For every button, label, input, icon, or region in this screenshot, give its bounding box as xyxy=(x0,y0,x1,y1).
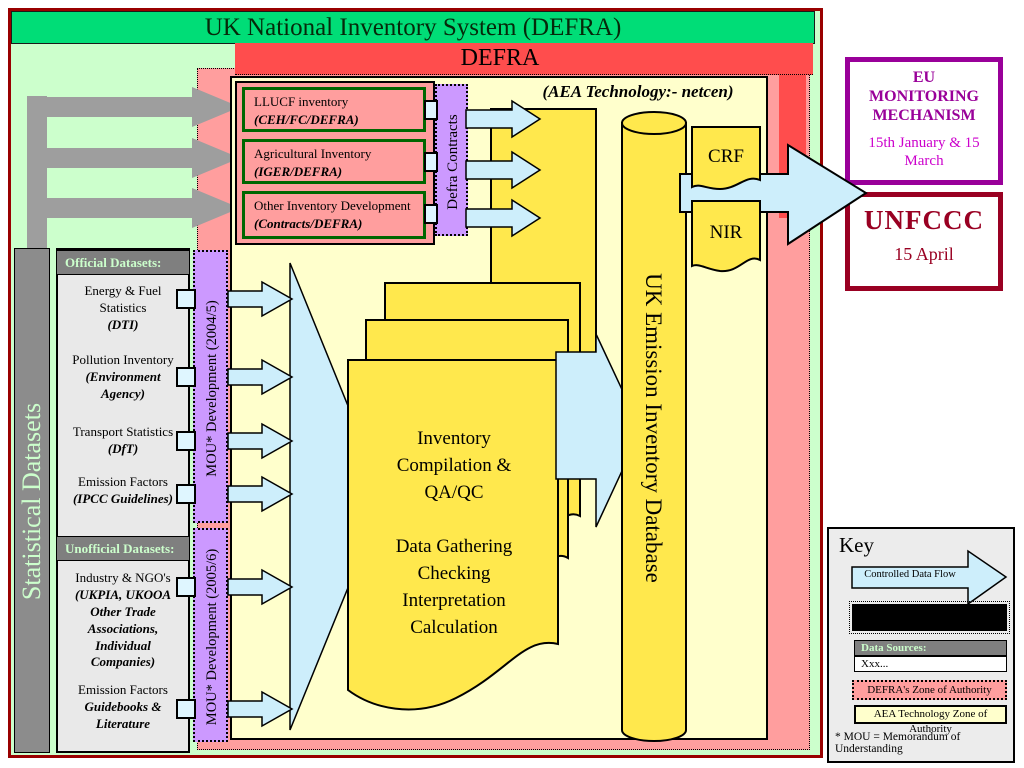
key-data-sources-example: Xxx... xyxy=(854,656,1007,672)
connector-tab xyxy=(176,367,196,387)
contract-box-name: Agricultural Inventory xyxy=(254,146,371,161)
aea-zone-label: (AEA Technology:- netcen) xyxy=(510,82,766,102)
key-data-sources-header: Data Sources: xyxy=(854,640,1007,656)
key-mou-note: * MOU = Memorandum of Understanding xyxy=(835,731,1013,755)
key-defra-zone-swatch: DEFRA's Zone of Authority xyxy=(852,680,1007,700)
dataset-name: Industry & NGO's xyxy=(75,570,171,585)
statistical-datasets-bar: Statistical Datasets xyxy=(14,248,50,753)
eu-monitoring-dates: 15th January & 15 March xyxy=(850,134,998,170)
connector-tab xyxy=(176,699,196,719)
mou-bar-2005-label: MOU* Development (2005/6) xyxy=(195,530,230,744)
key-controlled-flow-label: Controlled Data Flow xyxy=(852,569,968,580)
dataset-source: (DfT) xyxy=(56,441,190,458)
connector-tab xyxy=(176,431,196,451)
connector-tab xyxy=(424,100,438,120)
process-description: Inventory Compilation & QA/QC Data Gathe… xyxy=(358,426,550,642)
page-title: UK National Inventory System (DEFRA) xyxy=(11,11,815,44)
mou-bar-2004: MOU* Development (2004/5) xyxy=(193,250,228,523)
defra-contracts-label: Defra Contracts xyxy=(437,86,470,238)
connector-tab xyxy=(424,204,438,224)
dataset-source: (UKPIA, UKOOA Other Trade Associations, … xyxy=(56,587,190,671)
connector-tab xyxy=(176,484,196,504)
defra-red-strip xyxy=(779,75,806,218)
unfccc-date: 15 April xyxy=(850,244,998,265)
official-datasets-header: Official Datasets: xyxy=(56,250,190,275)
statistical-datasets-label: Statistical Datasets xyxy=(15,249,49,754)
defra-banner: DEFRA xyxy=(235,43,813,75)
dataset-item-emission-factors: Emission Factors (IPCC Guidelines) xyxy=(56,474,190,508)
contract-box-org: (IGER/DEFRA) xyxy=(254,163,419,181)
contract-box-name: Other Inventory Development xyxy=(254,198,411,213)
unfccc-box: UNFCCC 15 April xyxy=(845,192,1003,291)
dataset-item-transport: Transport Statistics (DfT) xyxy=(56,424,190,458)
key-title: Key xyxy=(839,533,874,558)
unfccc-title: UNFCCC xyxy=(850,205,998,236)
connector-tab xyxy=(424,152,438,172)
contract-box-agricultural: Agricultural Inventory (IGER/DEFRA) xyxy=(242,139,426,184)
key-black-bar xyxy=(852,604,1007,631)
dataset-name: Energy & Fuel Statistics xyxy=(84,283,161,315)
defra-contracts-bar: Defra Contracts xyxy=(435,84,468,236)
connector-tab xyxy=(176,577,196,597)
dataset-item-guidebooks: Emission Factors Guidebooks & Literature xyxy=(56,682,190,733)
eu-monitoring-box: EU MONITORING MECHANISM 15th January & 1… xyxy=(845,57,1003,185)
contract-box-name: LLUCF inventory xyxy=(254,94,348,109)
dataset-name: Pollution Inventory xyxy=(72,352,173,367)
connector-tab xyxy=(176,289,196,309)
mou-bar-2005: MOU* Development (2005/6) xyxy=(193,528,228,742)
contract-box-llucf: LLUCF inventory (CEH/FC/DEFRA) xyxy=(242,87,426,132)
dataset-item-energy: Energy & Fuel Statistics (DTI) xyxy=(56,283,190,334)
key-aea-zone-swatch: AEA Technology Zone of Authority xyxy=(854,705,1007,724)
unofficial-datasets-header: Unofficial Datasets: xyxy=(56,536,190,561)
dataset-name: Emission Factors xyxy=(78,474,168,489)
contract-box-org: (Contracts/DEFRA) xyxy=(254,215,419,233)
contract-box-other: Other Inventory Development (Contracts/D… xyxy=(242,191,426,239)
contract-box-org: (CEH/FC/DEFRA) xyxy=(254,111,419,129)
dataset-source: (IPCC Guidelines) xyxy=(56,491,190,508)
dataset-source: (DTI) xyxy=(56,317,190,334)
mou-bar-2004-label: MOU* Development (2004/5) xyxy=(195,252,230,525)
dataset-name: Transport Statistics xyxy=(73,424,173,439)
dataset-item-pollution: Pollution Inventory (Environment Agency) xyxy=(56,352,190,403)
dataset-name: Emission Factors xyxy=(78,682,168,697)
process-back-sheet xyxy=(490,108,597,455)
dataset-source: Guidebooks & Literature xyxy=(56,699,190,733)
eu-monitoring-title: EU MONITORING MECHANISM xyxy=(850,68,998,126)
slide-canvas: UK National Inventory System (DEFRA) DEF… xyxy=(0,0,1024,768)
dataset-source: (Environment Agency) xyxy=(56,369,190,403)
dataset-item-industry-ngo: Industry & NGO's (UKPIA, UKOOA Other Tra… xyxy=(56,570,190,671)
